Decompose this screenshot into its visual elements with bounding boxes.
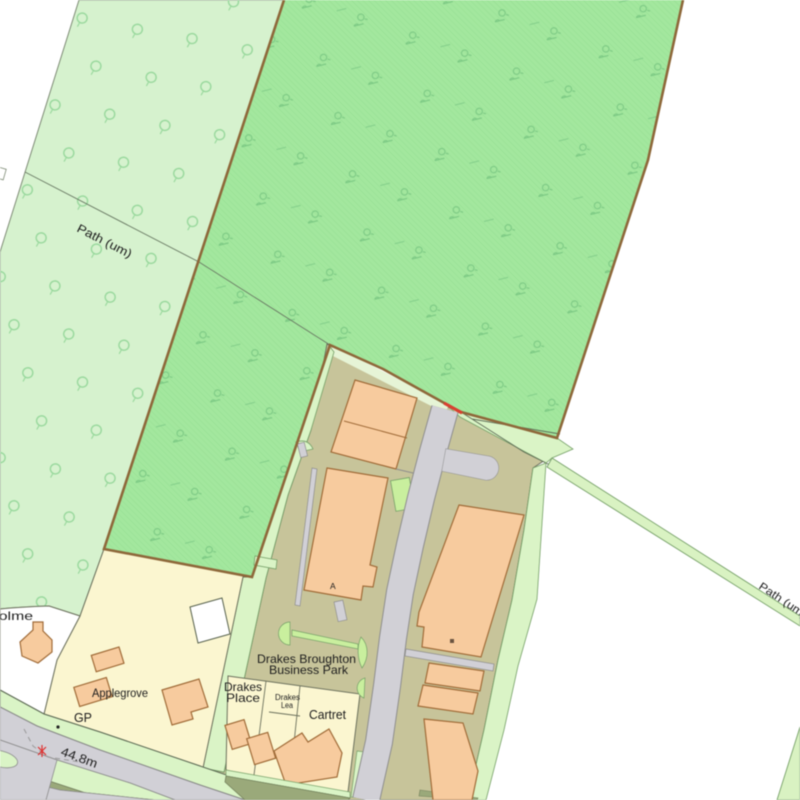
- svg-text:holme: holme: [0, 609, 33, 623]
- svg-text:Lea: Lea: [281, 701, 293, 710]
- svg-text:Applegrove: Applegrove: [92, 686, 148, 700]
- svg-text:A: A: [330, 581, 336, 591]
- svg-text:Business Park: Business Park: [269, 663, 349, 677]
- svg-text:Place: Place: [226, 691, 260, 705]
- svg-text:Cartret: Cartret: [309, 708, 347, 722]
- svg-text:GP: GP: [74, 710, 92, 725]
